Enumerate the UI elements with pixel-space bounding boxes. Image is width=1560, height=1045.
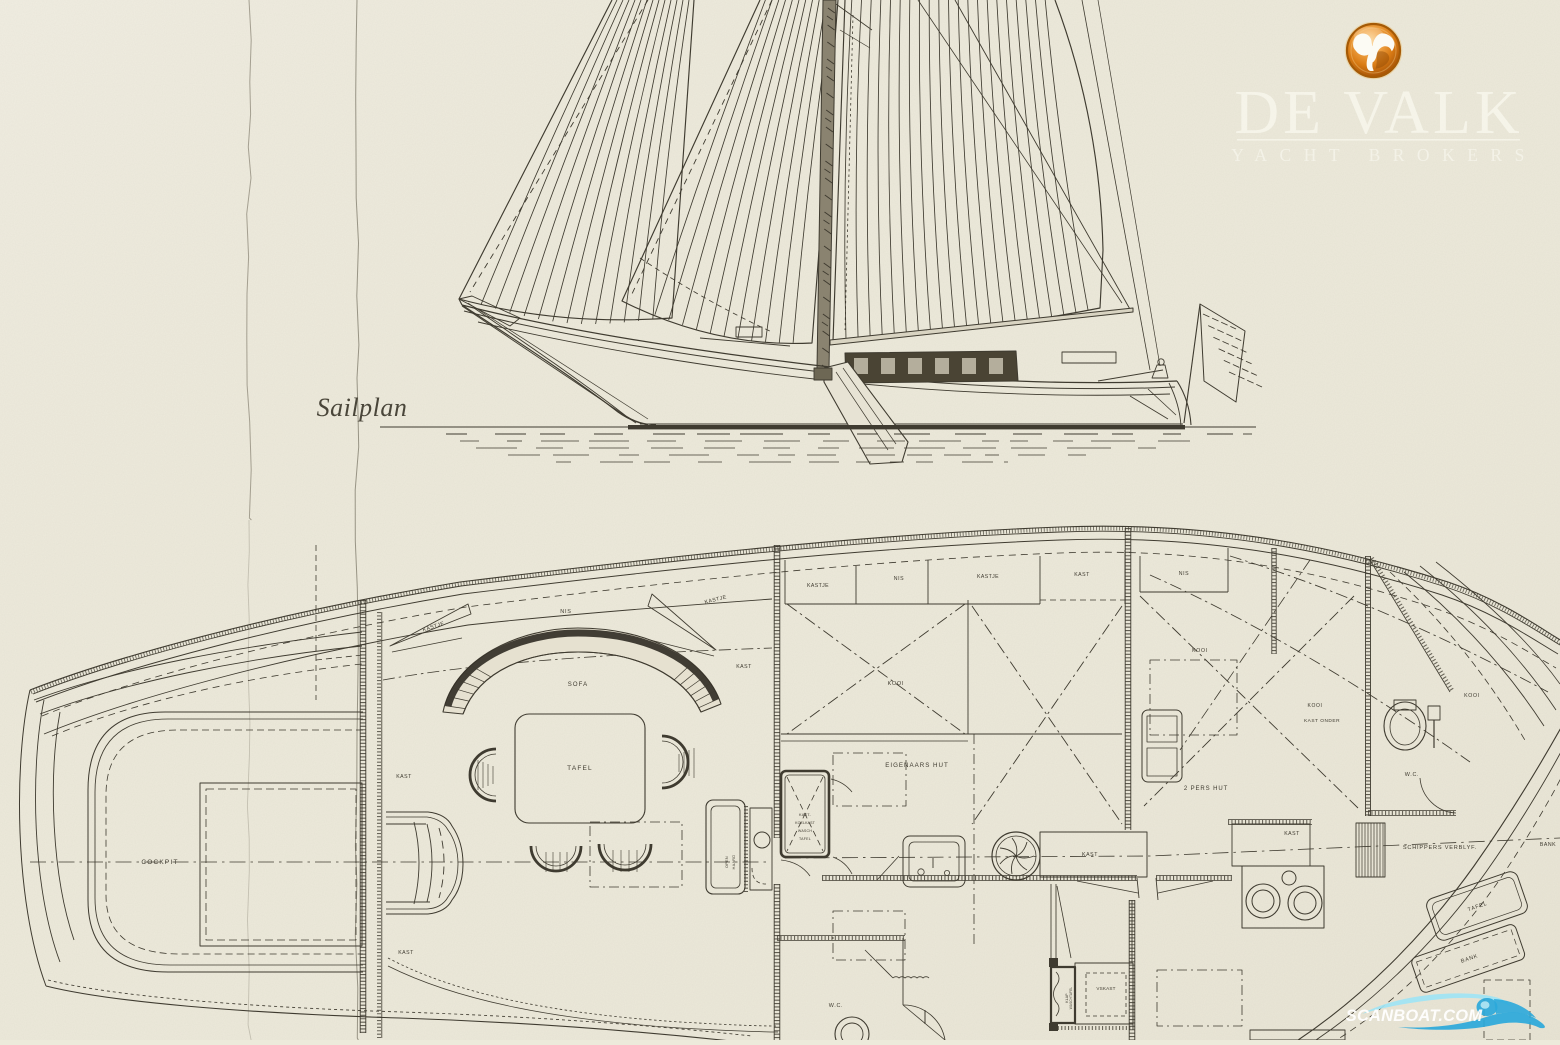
svg-text:KOOI: KOOI bbox=[1308, 703, 1323, 709]
svg-text:KOOI: KOOI bbox=[1464, 693, 1480, 699]
svg-text:WASCH: WASCH bbox=[798, 829, 812, 833]
svg-text:KAST: KAST bbox=[1284, 831, 1300, 837]
svg-text:KOOI: KOOI bbox=[888, 681, 905, 687]
svg-text:YACHT BROKERS: YACHT BROKERS bbox=[1231, 145, 1537, 165]
svg-text:DE VALK: DE VALK bbox=[1234, 79, 1523, 147]
svg-text:KOELKAST: KOELKAST bbox=[795, 821, 815, 825]
svg-text:KAST: KAST bbox=[1074, 572, 1090, 578]
svg-text:NIS: NIS bbox=[894, 576, 904, 582]
svg-text:Sailplan: Sailplan bbox=[317, 393, 408, 422]
svg-text:KAST: KAST bbox=[1082, 852, 1098, 858]
svg-text:NIS: NIS bbox=[1179, 571, 1189, 577]
svg-text:OPEN: OPEN bbox=[725, 856, 729, 868]
svg-text:KAST-: KAST- bbox=[799, 813, 812, 817]
svg-text:EIGENAARS HUT: EIGENAARS HUT bbox=[885, 762, 949, 769]
svg-text:SCHIPPERS VERBLYF.: SCHIPPERS VERBLYF. bbox=[1403, 845, 1477, 851]
svg-text:KAST: KAST bbox=[396, 774, 412, 780]
svg-text:KAST: KAST bbox=[398, 950, 414, 956]
svg-text:W.C.: W.C. bbox=[1405, 772, 1419, 778]
svg-text:KOOI: KOOI bbox=[1192, 648, 1208, 654]
svg-text:NIS: NIS bbox=[560, 609, 572, 615]
svg-text:VSKAST: VSKAST bbox=[1096, 986, 1115, 991]
svg-text:BANK: BANK bbox=[1540, 842, 1556, 848]
svg-text:KAST: KAST bbox=[736, 664, 752, 670]
svg-text:SCANBOAT.COM: SCANBOAT.COM bbox=[1346, 1007, 1484, 1025]
svg-text:W.C.: W.C. bbox=[829, 1003, 843, 1009]
svg-text:2 PERS HUT: 2 PERS HUT bbox=[1184, 786, 1228, 792]
svg-text:TAFEL: TAFEL bbox=[567, 765, 593, 772]
svg-text:KASTJE: KASTJE bbox=[977, 574, 999, 580]
svg-text:SOFA: SOFA bbox=[568, 682, 588, 688]
svg-text:WASCHTAFEL: WASCHTAFEL bbox=[1069, 987, 1073, 1010]
svg-text:TAFEL: TAFEL bbox=[799, 837, 811, 841]
svg-text:KAST ONDER: KAST ONDER bbox=[1304, 718, 1340, 724]
svg-text:COCKPIT: COCKPIT bbox=[141, 859, 178, 866]
svg-text:KASTJE: KASTJE bbox=[807, 583, 829, 589]
svg-text:HAARD: HAARD bbox=[732, 855, 736, 870]
